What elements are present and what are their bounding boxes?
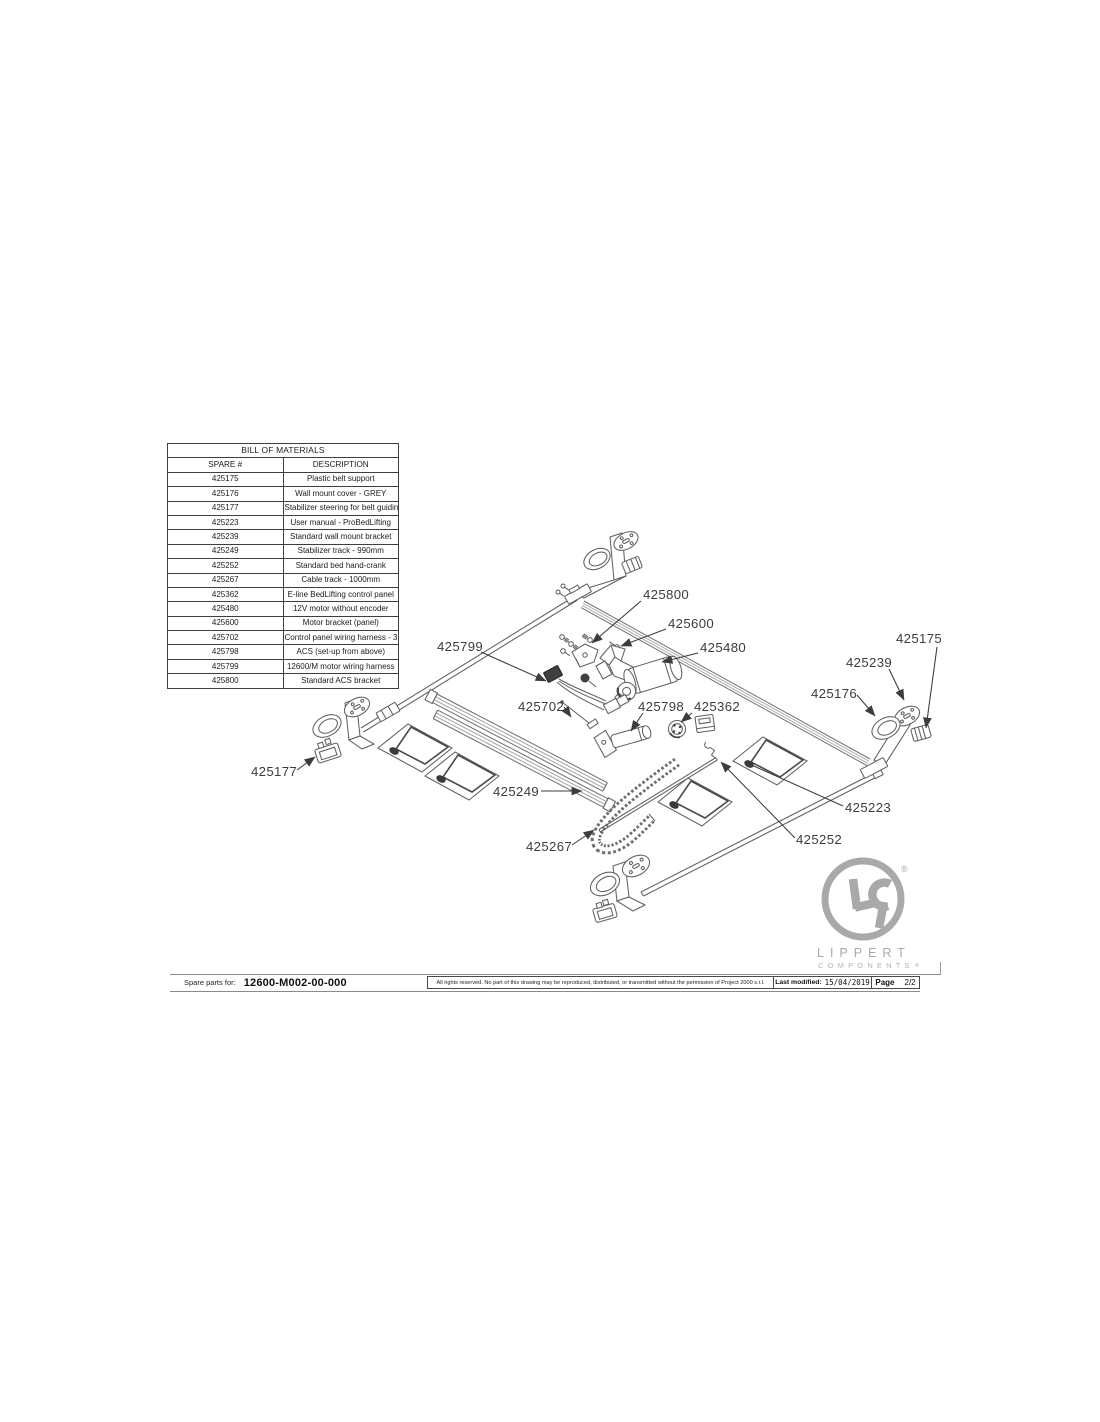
plastic-belt-support-part — [911, 724, 932, 741]
control-panel — [669, 721, 686, 738]
lippert-components-logo: ® LIPPERT COMPONENTS ® — [817, 861, 919, 970]
tube-clamp — [376, 702, 400, 722]
callout-425175-leader — [926, 647, 937, 728]
last-modified-cell: Last modified: 15/04/2019 — [773, 977, 871, 988]
callout-425177-label: 425177 — [251, 764, 297, 779]
callout-425600-leader — [621, 629, 666, 646]
spare-parts-document-page: BILL OF MATERIALS SPARE # DESCRIPTION 42… — [0, 0, 1100, 1422]
bottom-corner-assembly — [586, 851, 653, 923]
spare-parts-label: Spare parts for: — [184, 978, 236, 987]
footer-title-block: Spare parts for: 12600-M002-00-000 — [170, 976, 427, 989]
callout-425267-leader — [572, 830, 594, 845]
belt-guide-bracket — [591, 898, 618, 923]
logo-brand-subtitle: COMPONENTS — [818, 961, 914, 970]
callout-425176: 425176 — [811, 686, 875, 716]
callout-425798-label: 425798 — [638, 699, 684, 714]
wall-mount-bracket-plate — [341, 693, 373, 721]
last-modified-value: 15/04/2019 — [825, 978, 870, 987]
callout-425702-label: 425702 — [518, 699, 564, 714]
exploded-parts-drawing: 425800 425600 425480 425175 425239 42517… — [0, 0, 1100, 1422]
callout-425249-label: 425249 — [493, 784, 539, 799]
callout-425249: 425249 — [493, 784, 582, 799]
callout-425175-label: 425175 — [896, 631, 942, 646]
page-number-cell: Page 2/2 — [871, 977, 919, 988]
callout-425177: 425177 — [251, 757, 315, 779]
manual-sheet — [658, 778, 732, 826]
wall-mount-cover — [580, 544, 614, 574]
callout-425362-leader — [681, 713, 692, 722]
callout-425800-label: 425800 — [643, 587, 689, 602]
callout-425362-label: 425362 — [694, 699, 740, 714]
logo-ring — [825, 861, 901, 937]
logo-brand-name: LIPPERT — [817, 946, 911, 960]
last-modified-label: Last modified: — [775, 979, 821, 986]
page-frame-tick — [940, 962, 941, 974]
callout-425799-label: 425799 — [437, 639, 483, 654]
logo-registered-mark-small: ® — [915, 962, 919, 969]
callout-425239-label: 425239 — [846, 655, 892, 670]
callout-425799: 425799 — [437, 639, 546, 681]
top-wall-mount-assembly — [555, 528, 642, 604]
acs-unit — [593, 718, 654, 758]
callout-425799-leader — [481, 652, 546, 681]
footer-info-box: All rights reserved. No part of this dra… — [427, 976, 920, 989]
callout-425480-label: 425480 — [700, 640, 746, 655]
callout-425267: 425267 — [526, 830, 594, 854]
panel-box — [695, 714, 715, 732]
wall-mount-cover — [309, 710, 345, 742]
callout-425600-label: 425600 — [668, 616, 714, 631]
manual-sheet — [733, 737, 807, 785]
right-wall-mount-assembly — [860, 702, 931, 783]
logo-registered-mark: ® — [901, 864, 908, 874]
footer-bottom-rule — [170, 991, 920, 992]
footer-top-rule — [170, 974, 941, 975]
callout-425176-leader — [857, 695, 875, 716]
callout-425239-leader — [889, 669, 904, 700]
callout-425223-label: 425223 — [845, 800, 891, 815]
lci-monogram-icon — [853, 879, 890, 928]
callout-425267-label: 425267 — [526, 839, 572, 854]
callout-425252-label: 425252 — [796, 832, 842, 847]
callout-425702: 425702 — [518, 699, 571, 717]
page-label: Page — [875, 978, 894, 987]
stabilizer-steering-part — [312, 736, 341, 763]
drawing-number: 12600-M002-00-000 — [244, 977, 347, 989]
callout-425177-leader — [297, 757, 315, 770]
page-value: 2/2 — [905, 978, 916, 987]
callout-425176-label: 425176 — [811, 686, 857, 701]
rights-notice: All rights reserved. No part of this dra… — [428, 977, 773, 988]
